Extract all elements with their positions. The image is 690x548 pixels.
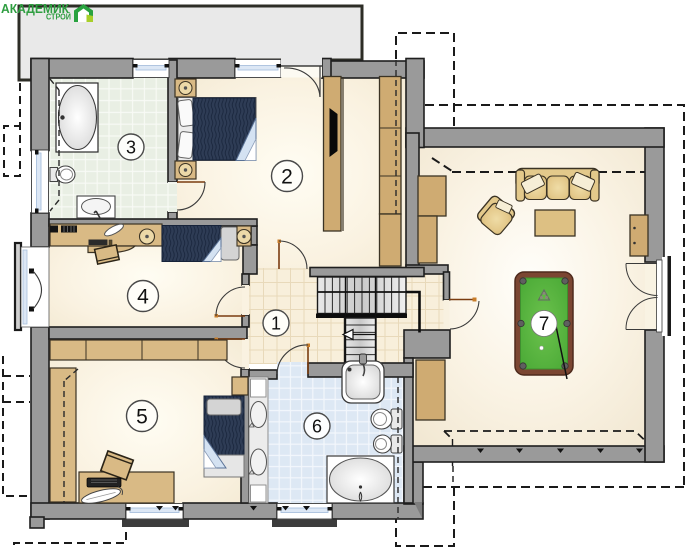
svg-text:1: 1 bbox=[271, 314, 281, 334]
svg-text:3: 3 bbox=[126, 138, 136, 158]
svg-text:2: 2 bbox=[281, 166, 293, 189]
svg-text:4: 4 bbox=[137, 286, 149, 309]
svg-text:7: 7 bbox=[539, 314, 550, 335]
svg-text:СТРОЙ: СТРОЙ bbox=[46, 13, 71, 22]
svg-text:6: 6 bbox=[312, 417, 322, 437]
svg-text:5: 5 bbox=[136, 406, 148, 429]
